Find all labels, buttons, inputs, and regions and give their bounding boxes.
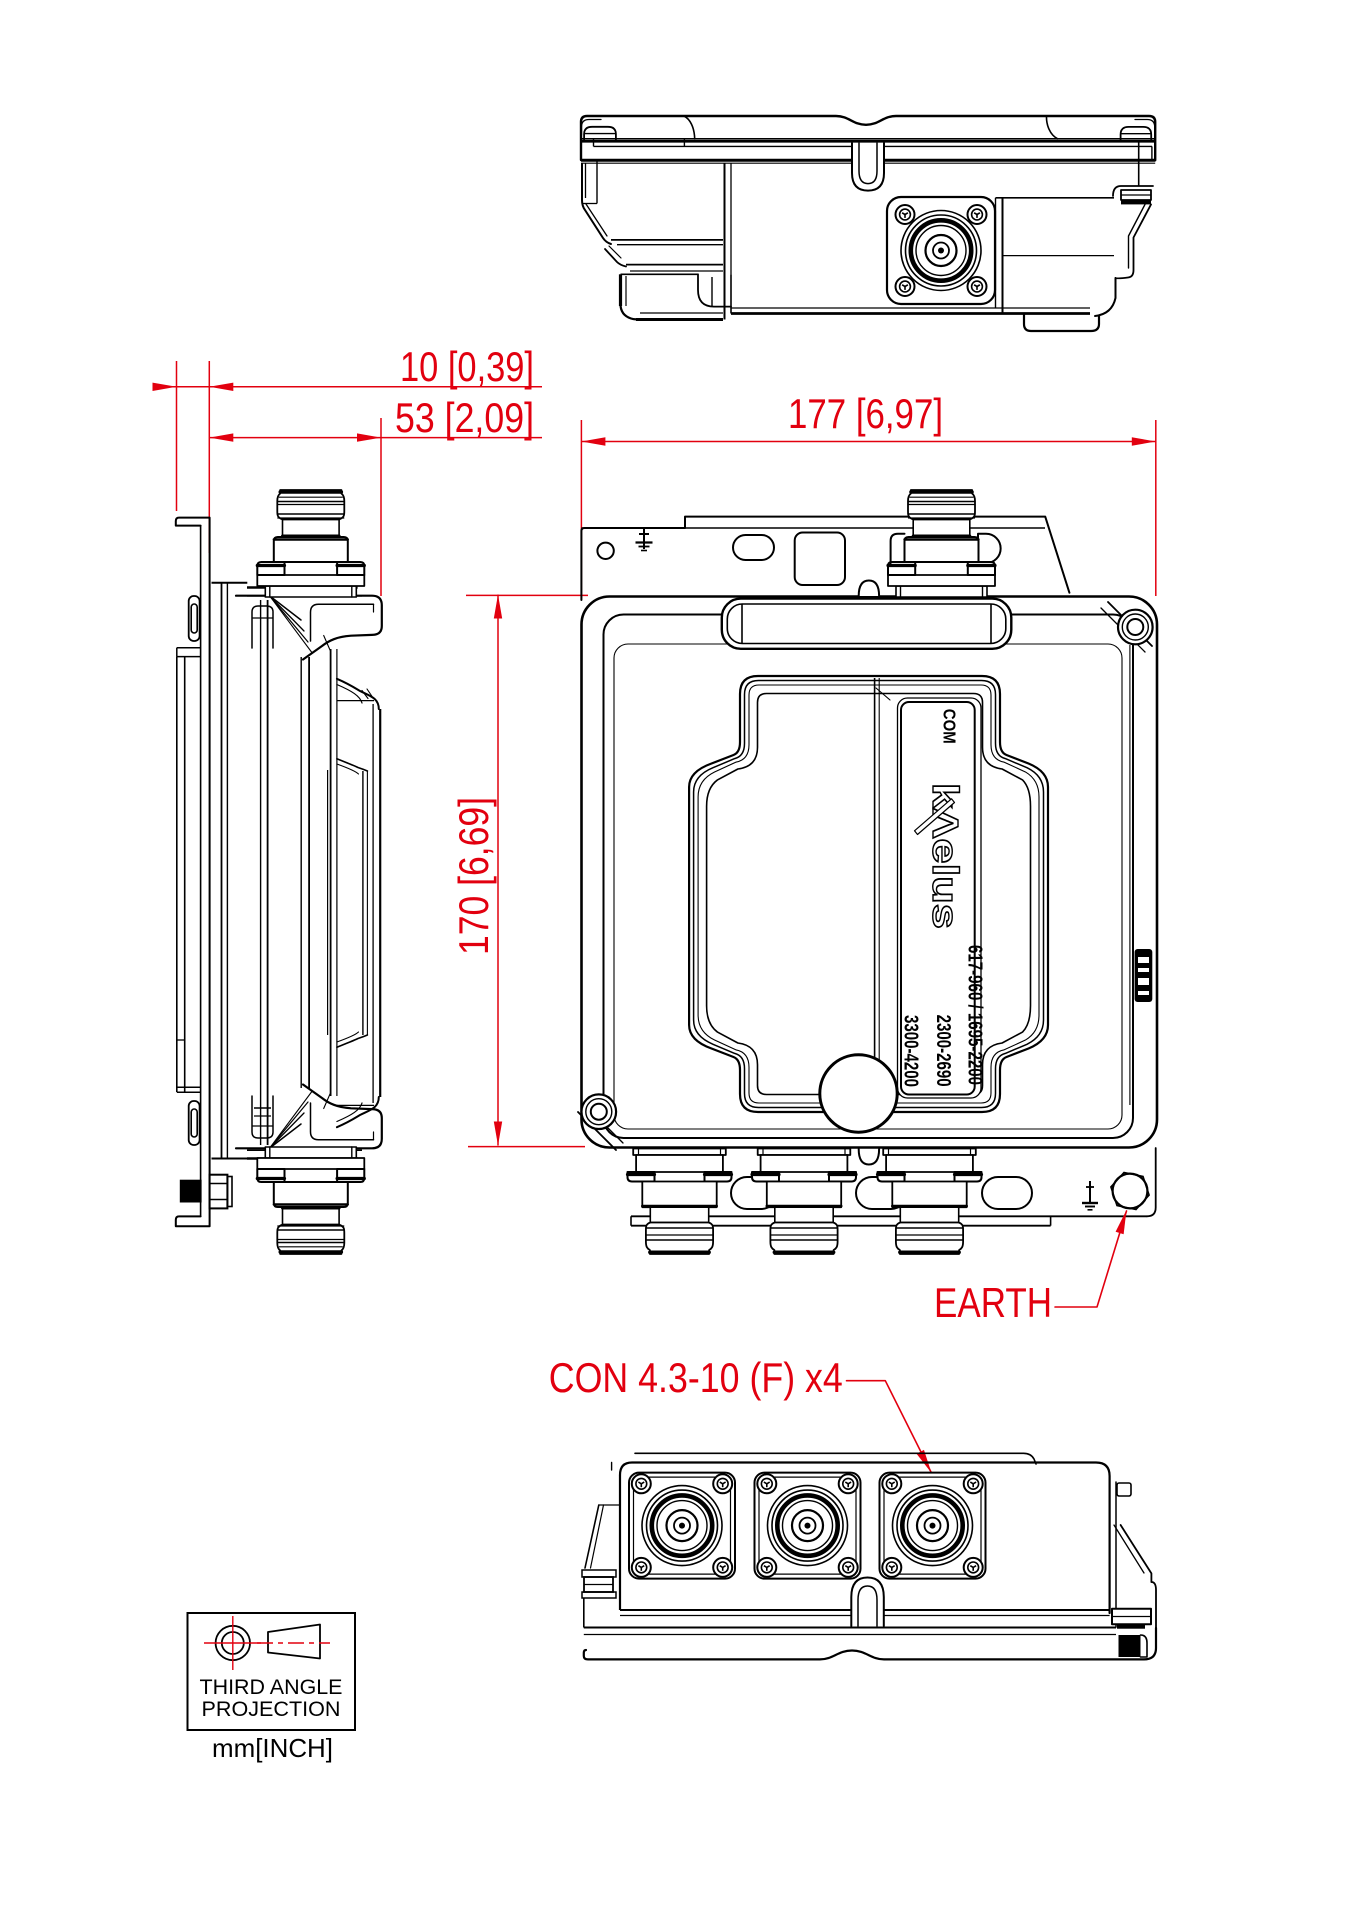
- svg-text:10 [0,39]: 10 [0,39]: [400, 343, 534, 390]
- svg-text:mm[INCH]: mm[INCH]: [212, 1733, 333, 1763]
- svg-text:3300-4200: 3300-4200: [900, 1015, 922, 1087]
- svg-text:CON 4.3-10 (F) x4: CON 4.3-10 (F) x4: [549, 1354, 843, 1401]
- svg-text:EARTH: EARTH: [934, 1279, 1052, 1326]
- svg-text:COM: COM: [940, 709, 960, 744]
- svg-text:2300-2690: 2300-2690: [932, 1015, 954, 1087]
- svg-text:THIRD ANGLE: THIRD ANGLE: [200, 1675, 343, 1699]
- svg-text:53 [2,09]: 53 [2,09]: [395, 394, 534, 441]
- svg-text:617-960 / 1695-2200: 617-960 / 1695-2200: [964, 945, 986, 1085]
- svg-text:PROJECTION: PROJECTION: [202, 1697, 341, 1721]
- svg-text:177 [6,97]: 177 [6,97]: [788, 390, 943, 437]
- svg-text:170 [6,69]: 170 [6,69]: [450, 797, 497, 955]
